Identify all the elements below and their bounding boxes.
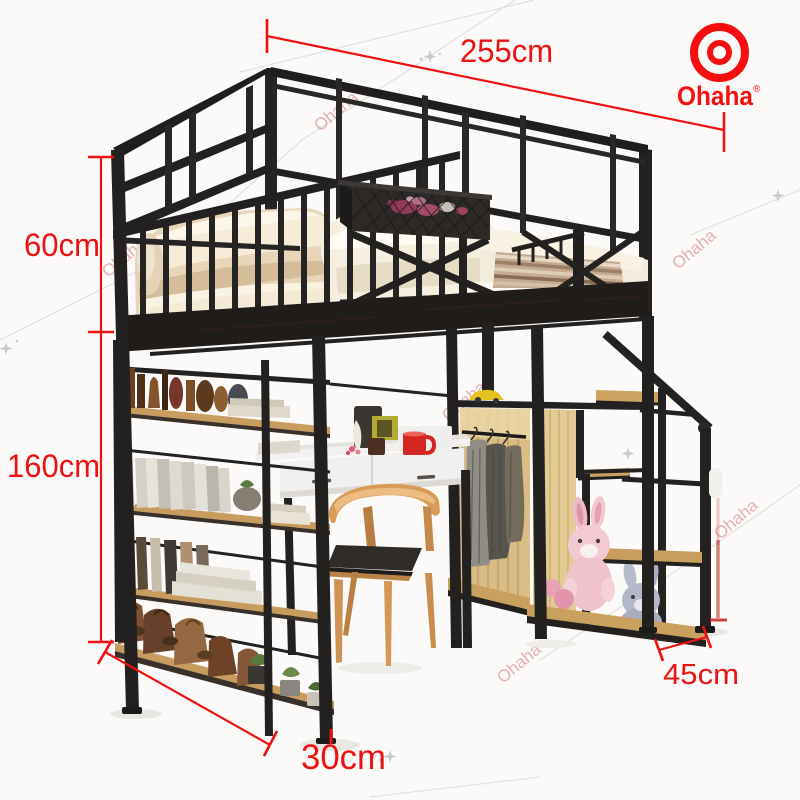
svg-text:Ohaha: Ohaha xyxy=(677,81,754,111)
svg-text:®: ® xyxy=(753,84,761,95)
svg-text:255cm: 255cm xyxy=(460,33,553,69)
svg-text:45cm: 45cm xyxy=(663,659,739,691)
svg-text:30cm: 30cm xyxy=(301,738,386,777)
svg-text:160cm: 160cm xyxy=(7,448,100,484)
svg-text:60cm: 60cm xyxy=(24,227,100,263)
